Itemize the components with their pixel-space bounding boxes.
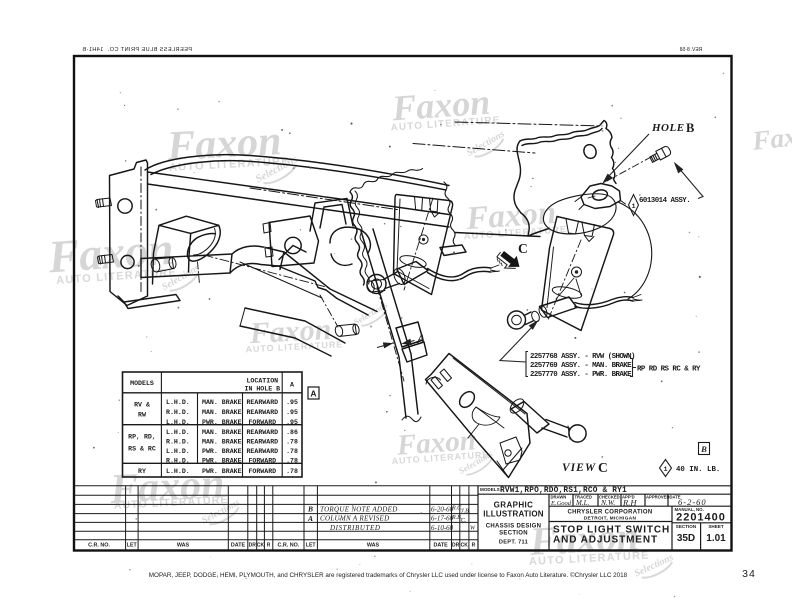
svg-text:6-2-60: 6-2-60: [678, 497, 707, 507]
svg-text:REARWARD: REARWARD: [246, 429, 278, 436]
svg-text:FORWARD: FORWARD: [248, 457, 276, 464]
svg-text:REARWARD: REARWARD: [246, 409, 278, 416]
svg-text:2257768 ASSY. - RVW (SHOWN): 2257768 ASSY. - RVW (SHOWN): [530, 353, 635, 361]
svg-text:COLUMN A REVISED: COLUMN A REVISED: [320, 515, 390, 523]
svg-text:CK: CK: [461, 543, 469, 549]
svg-text:SECTION: SECTION: [499, 530, 528, 536]
svg-text:1: 1: [664, 466, 668, 473]
svg-text:PWR. BRAKE: PWR. BRAKE: [202, 448, 242, 455]
svg-text:.78: .78: [286, 448, 298, 455]
svg-text:DATE: DATE: [433, 543, 448, 549]
svg-text:SHEET: SHEET: [708, 524, 724, 529]
svg-text:TORQUE NOTE ADDED: TORQUE NOTE ADDED: [320, 505, 398, 513]
svg-text:RV &: RV &: [134, 402, 150, 409]
svg-text:IN HOLE B: IN HOLE B: [244, 385, 280, 392]
svg-text:REARWARD: REARWARD: [246, 399, 278, 406]
svg-text:LET: LET: [306, 543, 317, 549]
svg-text:J.B.: J.B.: [461, 508, 470, 514]
svg-text:A: A: [307, 514, 313, 523]
svg-text:RW: RW: [138, 412, 146, 419]
svg-text:B: B: [686, 121, 694, 135]
svg-text:2201400: 2201400: [676, 511, 726, 523]
svg-text:LET: LET: [127, 543, 138, 549]
svg-text:C.R. NO.: C.R. NO.: [277, 543, 299, 549]
svg-text:R: R: [472, 543, 476, 549]
svg-text:CK: CK: [257, 543, 265, 549]
svg-text:AND ADJUSTMENT: AND ADJUSTMENT: [553, 535, 658, 546]
svg-text:CHASSIS DESIGN: CHASSIS DESIGN: [486, 523, 542, 529]
svg-text:C.R. NO.: C.R. NO.: [88, 543, 110, 549]
svg-text:2257769 ASSY. - MAN. BRAKE: 2257769 ASSY. - MAN. BRAKE: [530, 362, 632, 370]
svg-text:E.Good: E.Good: [550, 500, 572, 507]
svg-text:DEPT. 711: DEPT. 711: [499, 540, 528, 546]
svg-text:FORWARD: FORWARD: [248, 468, 276, 475]
svg-text:B: B: [700, 444, 707, 454]
svg-text:DISTRIBUTED: DISTRIBUTED: [329, 524, 381, 532]
svg-text:R.H: R.H: [622, 498, 637, 508]
svg-text:SECTION: SECTION: [676, 524, 697, 529]
svg-text:PEERLESS BLUE PRINT CO. 14H1-: PEERLESS BLUE PRINT CO. 14H1-B: [82, 47, 192, 53]
svg-text:MAN. BRAKE: MAN. BRAKE: [202, 429, 242, 436]
svg-text:.86: .86: [286, 429, 298, 436]
svg-text:C: C: [518, 241, 528, 256]
svg-text:1.01: 1.01: [706, 533, 726, 544]
svg-text:REARWARD: REARWARD: [246, 448, 278, 455]
svg-text:REV. 8-58: REV. 8-58: [679, 47, 702, 53]
svg-text:DATE: DATE: [231, 543, 246, 549]
svg-text:.78: .78: [286, 439, 298, 446]
svg-text:M.L.: M.L.: [575, 499, 589, 507]
svg-text:1: 1: [632, 203, 636, 210]
svg-text:.95: .95: [286, 419, 298, 426]
svg-text:RP, RD,: RP, RD,: [128, 434, 156, 441]
svg-text:6-10-60: 6-10-60: [431, 524, 454, 532]
svg-text:REARWARD: REARWARD: [246, 439, 278, 446]
svg-text:DR: DR: [452, 543, 460, 549]
svg-text:A: A: [416, 332, 425, 346]
svg-text:PWR. BRAKE: PWR. BRAKE: [202, 468, 242, 475]
svg-text:HOLE: HOLE: [651, 122, 685, 134]
svg-text:PWR. BRAKE: PWR. BRAKE: [202, 419, 242, 426]
svg-text:R: R: [267, 543, 271, 549]
svg-text:DR: DR: [249, 543, 257, 549]
svg-text:RY: RY: [138, 468, 146, 475]
svg-text:MODELS: MODELS: [130, 380, 154, 387]
svg-text:LOCATION: LOCATION: [246, 377, 278, 384]
svg-text:35D: 35D: [677, 533, 695, 544]
svg-text:L.H.D.: L.H.D.: [166, 419, 190, 426]
svg-text:L.H.D.: L.H.D.: [166, 399, 190, 406]
svg-text:R.H.D.: R.H.D.: [166, 457, 190, 464]
svg-text:6-17-60: 6-17-60: [431, 515, 454, 523]
svg-text:L.H.D.: L.H.D.: [166, 429, 190, 436]
svg-text:R.H.D.: R.H.D.: [166, 409, 190, 416]
svg-text:.78: .78: [286, 457, 298, 464]
svg-text:.78: .78: [286, 468, 298, 475]
svg-text:PWR. BRAKE: PWR. BRAKE: [202, 457, 242, 464]
svg-text:C.: C.: [461, 518, 467, 524]
svg-text:VIEW: VIEW: [562, 462, 596, 474]
svg-text:.95: .95: [286, 409, 298, 416]
svg-text:2257770 ASSY. - PWR. BRAKE: 2257770 ASSY. - PWR. BRAKE: [530, 371, 632, 379]
svg-text:R.H.D.: R.H.D.: [166, 439, 190, 446]
svg-text:MAN. BRAKE: MAN. BRAKE: [202, 399, 242, 406]
svg-text:GRAPHIC: GRAPHIC: [494, 500, 534, 509]
svg-text:MAN. BRAKE: MAN. BRAKE: [202, 439, 242, 446]
svg-text:34: 34: [742, 568, 756, 580]
svg-text:N.W.: N.W.: [600, 498, 615, 507]
svg-text:MOPAR, JEEP, DODGE, HEMI, PLYM: MOPAR, JEEP, DODGE, HEMI, PLYMOUTH, and …: [149, 571, 628, 579]
svg-text:6013014 ASSY.: 6013014 ASSY.: [639, 197, 690, 205]
svg-text:WAS: WAS: [177, 543, 190, 549]
svg-text:40 IN. LB.: 40 IN. LB.: [676, 466, 720, 474]
svg-text:CHRYSLER CORPORATION: CHRYSLER CORPORATION: [567, 509, 652, 515]
svg-text:L.H.D.: L.H.D.: [166, 448, 190, 455]
svg-text:MAN. BRAKE: MAN. BRAKE: [202, 409, 242, 416]
svg-text:C: C: [598, 460, 608, 475]
svg-text:WAS: WAS: [367, 543, 380, 549]
svg-text:DRAWN: DRAWN: [551, 495, 567, 500]
svg-text:.95: .95: [286, 399, 298, 406]
svg-text:L.H.D.: L.H.D.: [166, 468, 190, 475]
svg-text:MODELS: MODELS: [480, 487, 500, 492]
svg-text:A: A: [290, 382, 294, 389]
svg-text:FORWARD: FORWARD: [248, 419, 276, 426]
svg-text:APPROVED: APPROVED: [646, 495, 670, 500]
svg-text:DETROIT, MICHIGAN: DETROIT, MICHIGAN: [584, 516, 637, 522]
svg-text:B: B: [307, 505, 313, 514]
svg-text:A: A: [310, 388, 316, 398]
svg-text:RS & RC: RS & RC: [128, 446, 156, 453]
svg-text:6-20-60: 6-20-60: [431, 505, 454, 513]
svg-text:ILLUSTRATION: ILLUSTRATION: [483, 509, 543, 518]
svg-text:RP RD RS RC & RY: RP RD RS RC & RY: [637, 366, 701, 374]
